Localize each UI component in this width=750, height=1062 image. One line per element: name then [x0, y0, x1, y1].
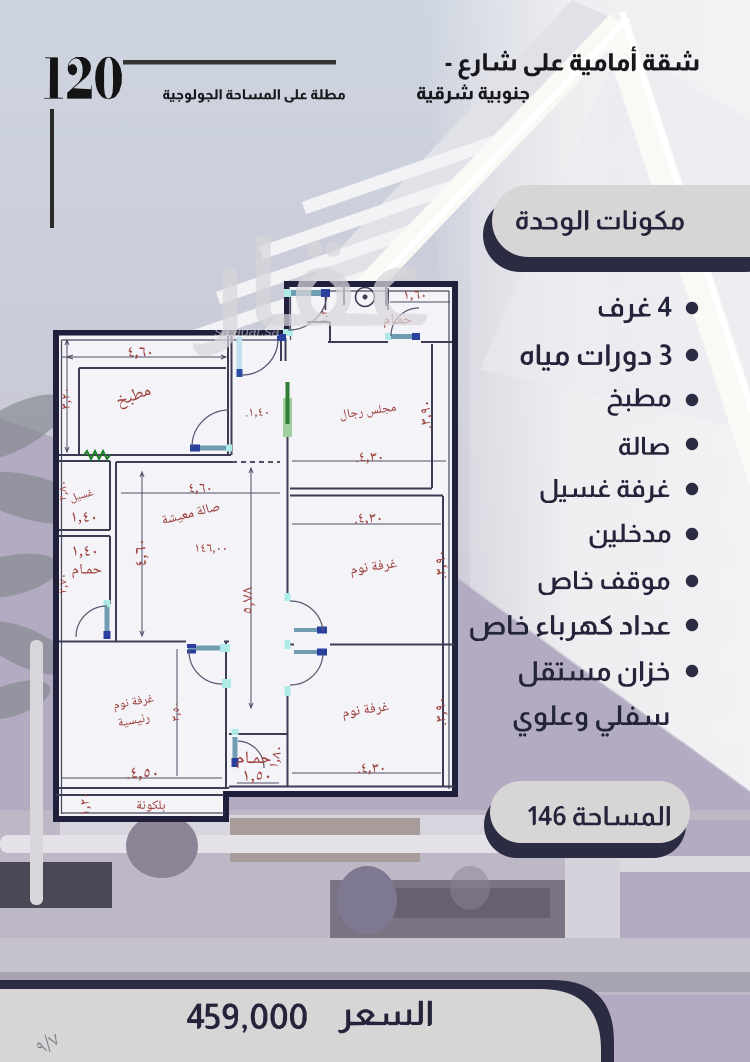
- svg-text:sa aqar.sa: sa aqar.sa: [215, 323, 280, 339]
